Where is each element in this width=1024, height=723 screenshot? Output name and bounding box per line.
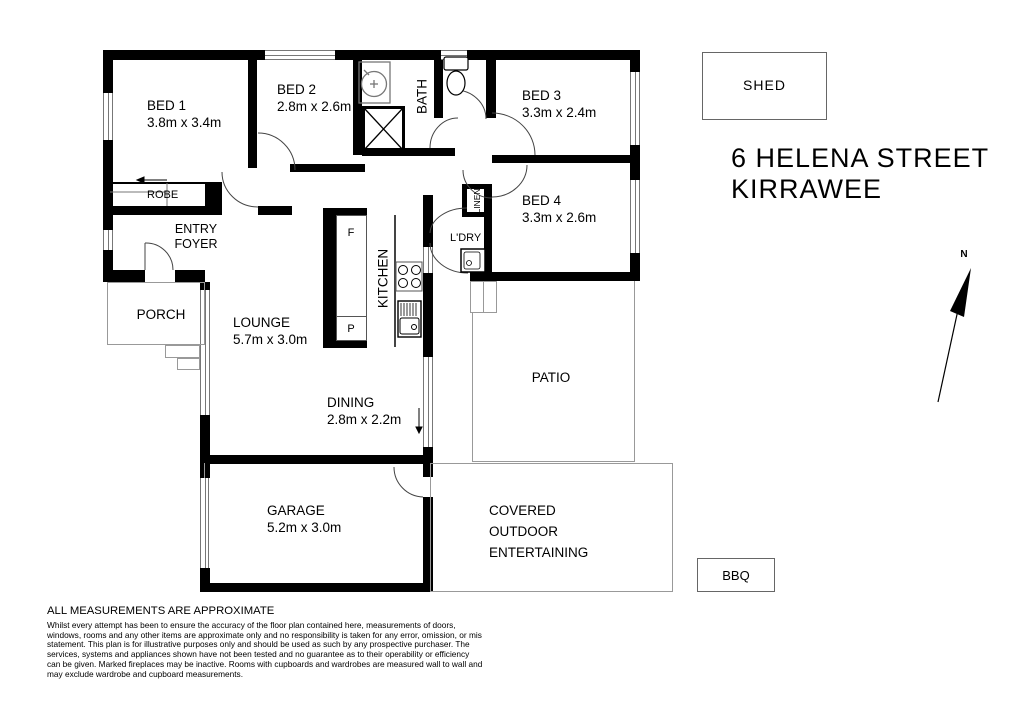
laundry-tub-icon	[461, 249, 485, 272]
bbq-label: BBQ	[698, 568, 774, 583]
shed-outline: SHED	[702, 52, 827, 120]
floor-plan: BED 1 3.8m x 3.4m BED 2 2.8m x 2.6m BED …	[0, 0, 1024, 723]
bed1-name: BED 1	[147, 97, 221, 114]
room-label-linen: LINEN	[471, 181, 483, 221]
room-label-porch: PORCH	[128, 306, 194, 323]
dining-name: DINING	[327, 394, 401, 411]
address-line1: 6 HELENA STREET	[731, 143, 989, 174]
north-label: N	[954, 249, 974, 260]
bath-basin-icon	[359, 62, 390, 103]
bed2-door-arc	[258, 133, 295, 170]
lounge-dims: 5.7m x 3.0m	[233, 331, 307, 348]
toilet-icon	[444, 57, 468, 95]
property-address: 6 HELENA STREET KIRRAWEE	[731, 143, 989, 205]
entry-line2: FOYER	[166, 237, 226, 252]
room-label-entry-foyer: ENTRY FOYER	[166, 222, 226, 252]
shed-label: SHED	[703, 77, 826, 93]
north-arrow-icon	[938, 268, 971, 402]
entry-line1: ENTRY	[166, 222, 226, 237]
dining-dims: 2.8m x 2.2m	[327, 411, 401, 428]
door-arcs	[145, 90, 535, 497]
room-label-lounge: LOUNGE 5.7m x 3.0m	[233, 314, 307, 348]
bed3-dims: 3.3m x 2.4m	[522, 104, 596, 121]
bed2-dims: 2.8m x 2.6m	[277, 98, 351, 115]
garage-name: GARAGE	[267, 502, 341, 519]
room-label-kitchen: KITCHEN	[375, 229, 392, 329]
disclaimer-line: may exclude wardrobe and cupboard measur…	[47, 670, 482, 680]
address-line2: KIRRAWEE	[731, 174, 989, 205]
room-label-bed2: BED 2 2.8m x 2.6m	[277, 81, 351, 115]
room-label-robe: ROBE	[147, 189, 178, 201]
bath-door-arc	[430, 118, 458, 148]
entry-path-arrow-icon	[416, 408, 422, 433]
garage-dims: 5.2m x 3.0m	[267, 519, 341, 536]
room-label-dining: DINING 2.8m x 2.2m	[327, 394, 401, 428]
laundry-door-arc	[430, 208, 467, 233]
bed4-dims: 3.3m x 2.6m	[522, 209, 596, 226]
bbq-outline: BBQ	[697, 558, 775, 592]
robe-arrow-icon	[137, 177, 167, 183]
bed4-name: BED 4	[522, 192, 596, 209]
room-label-garage: GARAGE 5.2m x 3.0m	[267, 502, 341, 536]
room-label-bath: BATH	[414, 47, 431, 147]
shower-icon	[364, 108, 403, 150]
disclaimer-title: ALL MEASUREMENTS ARE APPROXIMATE	[47, 605, 482, 618]
room-label-bed3: BED 3 3.3m x 2.4m	[522, 87, 596, 121]
room-label-laundry: L'DRY	[450, 232, 481, 244]
bed2-name: BED 2	[277, 81, 351, 98]
covered-line1: COVERED	[489, 500, 588, 521]
room-label-patio: PATIO	[520, 369, 582, 386]
kitchen-sink-icon	[398, 301, 421, 337]
room-label-bed1: BED 1 3.8m x 3.4m	[147, 97, 221, 131]
stove-icon	[396, 262, 422, 291]
fridge-label: F	[341, 227, 361, 239]
lounge-name: LOUNGE	[233, 314, 307, 331]
disclaimer: ALL MEASUREMENTS ARE APPROXIMATE Whilst …	[47, 605, 482, 679]
pantry-label: P	[341, 323, 361, 335]
covered-line3: ENTERTAINING	[489, 542, 588, 563]
covered-line2: OUTDOOR	[489, 521, 588, 542]
bed1-dims: 3.8m x 3.4m	[147, 114, 221, 131]
room-label-covered-outdoor: COVERED OUTDOOR ENTERTAINING	[489, 500, 588, 563]
bed3-name: BED 3	[522, 87, 596, 104]
room-label-bed4: BED 4 3.3m x 2.6m	[522, 192, 596, 226]
hall-door-arc	[222, 172, 258, 207]
garage-access-door-arc	[394, 467, 423, 497]
